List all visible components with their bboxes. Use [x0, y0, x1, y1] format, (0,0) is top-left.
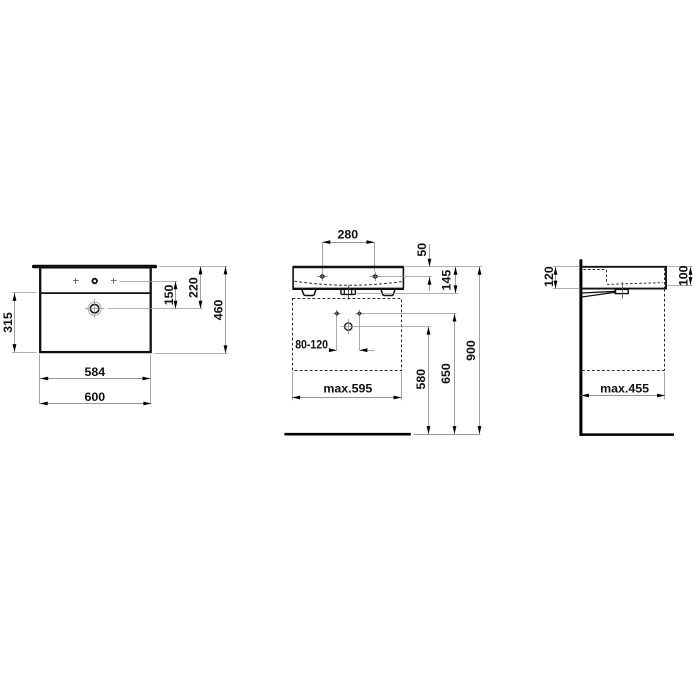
- svg-text:50: 50: [415, 243, 429, 257]
- svg-text:280: 280: [337, 227, 358, 241]
- svg-text:max.595: max.595: [323, 382, 372, 396]
- svg-text:315: 315: [1, 312, 15, 333]
- svg-text:100: 100: [676, 265, 690, 286]
- svg-text:220: 220: [186, 277, 200, 298]
- svg-text:460: 460: [211, 299, 225, 320]
- svg-text:150: 150: [162, 284, 176, 305]
- svg-text:120: 120: [542, 266, 556, 287]
- svg-text:584: 584: [84, 365, 105, 379]
- svg-text:80-120: 80-120: [295, 338, 328, 352]
- svg-text:max.455: max.455: [600, 381, 649, 395]
- svg-text:650: 650: [439, 363, 453, 384]
- svg-text:900: 900: [464, 340, 478, 361]
- svg-text:600: 600: [84, 390, 105, 404]
- svg-text:580: 580: [414, 369, 428, 390]
- svg-text:145: 145: [439, 270, 453, 291]
